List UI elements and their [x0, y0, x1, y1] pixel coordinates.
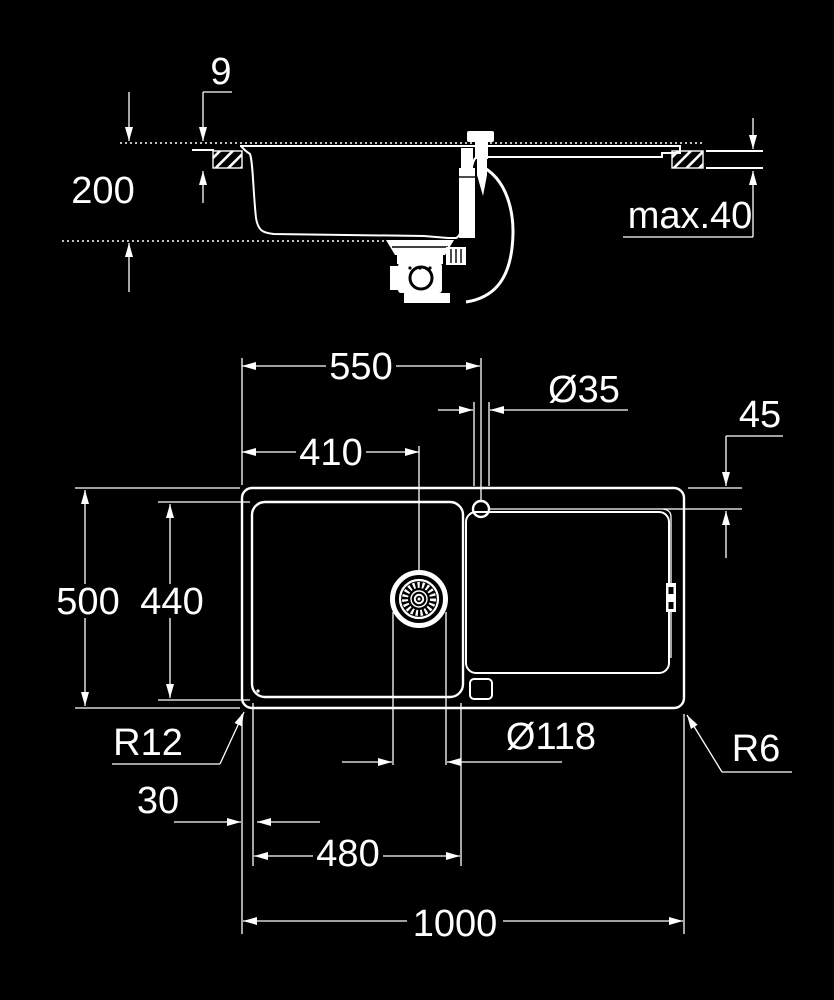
dim-bowl-inner-depth-label: 440: [140, 581, 203, 623]
dim-bowl-inner-depth: 440: [140, 504, 203, 698]
dim-rim-height: 9: [203, 51, 232, 203]
standpipe: [459, 168, 475, 238]
dim-counter-thickness: max.40: [623, 118, 753, 237]
side-view: 9 200 max.40: [62, 51, 763, 303]
dim-faucet-from-left: 550: [242, 346, 480, 388]
dim-rim-height-label: 9: [210, 51, 231, 93]
dim-drain-diameter: Ø118: [342, 716, 596, 762]
dim-outer-corner-radius-label: R6: [732, 728, 781, 770]
dim-edge-to-bowl-label: 30: [137, 780, 179, 822]
drain-strainer: [393, 573, 446, 626]
dim-bowl-depth-label: 200: [71, 170, 134, 212]
accessory-hole: [470, 679, 492, 699]
sink-dimension-drawing: 9 200 max.40: [0, 0, 834, 1000]
dim-bowl-corner-radius-label: R12: [113, 722, 183, 764]
countertop-hatch-left: [213, 151, 242, 168]
dim-bowl-corner-radius: R12: [112, 712, 244, 764]
faucet-hole: [473, 501, 489, 517]
dim-faucet-from-left-label: 550: [329, 346, 392, 388]
dim-counter-thickness-label: max.40: [628, 195, 753, 237]
dim-faucet-hole-diameter-label: Ø35: [548, 369, 620, 411]
dim-drain-diameter-label: Ø118: [506, 716, 596, 758]
dim-faucet-hole-diameter: Ø35: [438, 369, 628, 411]
dim-overall-width: 1000: [243, 903, 683, 945]
top-view: 550 Ø35 45 410 500: [56, 346, 792, 945]
dim-drain-from-left-label: 410: [299, 432, 362, 474]
dim-bowl-inner-width-label: 480: [316, 833, 379, 875]
dim-faucet-from-top-edge: 45: [726, 394, 783, 558]
dim-overall-depth-label: 500: [56, 581, 119, 623]
overflow-slot: [666, 583, 676, 612]
dim-edge-to-bowl: 30: [137, 780, 320, 822]
dim-overall-width-label: 1000: [413, 903, 498, 945]
popup-knob: [467, 131, 494, 142]
dim-outer-corner-radius: R6: [687, 715, 792, 772]
drawing-canvas: 9 200 max.40: [0, 0, 834, 1000]
dim-faucet-from-top-edge-label: 45: [739, 394, 781, 436]
dim-bowl-inner-width: 480: [254, 833, 460, 875]
dim-drain-from-left: 410: [242, 432, 419, 474]
dim-bowl-depth: 200: [71, 92, 134, 292]
dim-overall-depth: 500: [56, 490, 119, 706]
drainboard-outline: [466, 512, 669, 673]
